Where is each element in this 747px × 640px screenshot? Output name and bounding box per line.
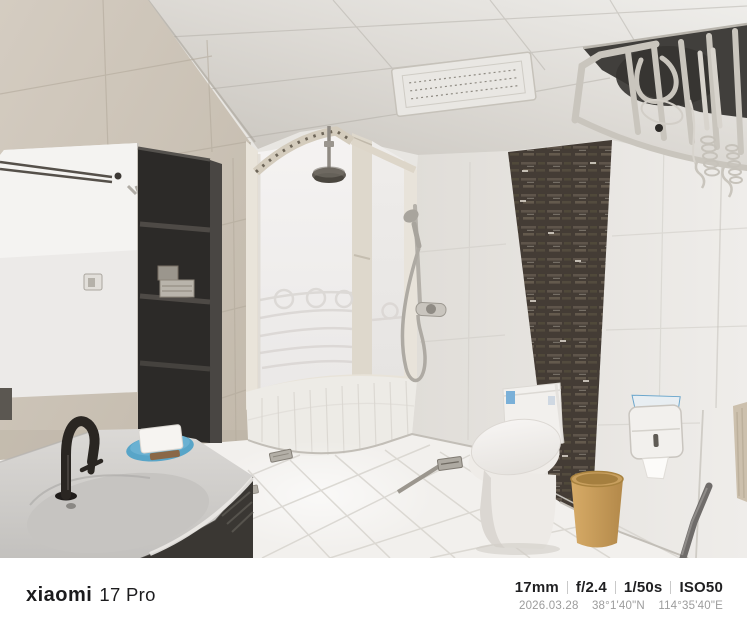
trash-bin [571, 472, 623, 548]
capture-info: 17mm f/2.4 1/50s ISO50 2026.03.28 38°1'4… [515, 579, 723, 612]
camera-watermark-bar: xiaomi 17 Pro 17mm f/2.4 1/50s ISO50 202… [0, 558, 747, 640]
overflow-hole [66, 503, 76, 509]
bathroom-photo [0, 0, 747, 558]
tank-sticker [506, 391, 515, 404]
capture-meta: 2026.03.28 38°1'40"N 114°35'40"E [515, 600, 723, 612]
faucet-reflection [0, 388, 12, 420]
wall-cabinet [138, 148, 222, 443]
iso: ISO50 [679, 579, 723, 596]
camera-settings: 17mm f/2.4 1/50s ISO50 [515, 579, 723, 596]
soap-box [139, 424, 184, 453]
switch-reflection [84, 274, 102, 290]
device-model: 17 Pro [99, 584, 155, 606]
capture-date: 2026.03.28 [519, 600, 579, 612]
device-name: xiaomi 17 Pro [26, 584, 156, 607]
focal-length: 17mm [515, 579, 559, 596]
tank-sticker-2 [548, 396, 555, 405]
separator [615, 581, 616, 594]
xiaomi-logo: xiaomi [26, 584, 92, 607]
longitude: 114°35'40"E [658, 600, 723, 612]
camera-photo-page: xiaomi 17 Pro 17mm f/2.4 1/50s ISO50 202… [0, 0, 747, 640]
mirror [0, 143, 140, 420]
shutter-speed: 1/50s [624, 579, 663, 596]
latitude: 38°1'40"N [592, 600, 645, 612]
aperture: f/2.4 [576, 579, 607, 596]
separator [670, 581, 671, 594]
separator [567, 581, 568, 594]
